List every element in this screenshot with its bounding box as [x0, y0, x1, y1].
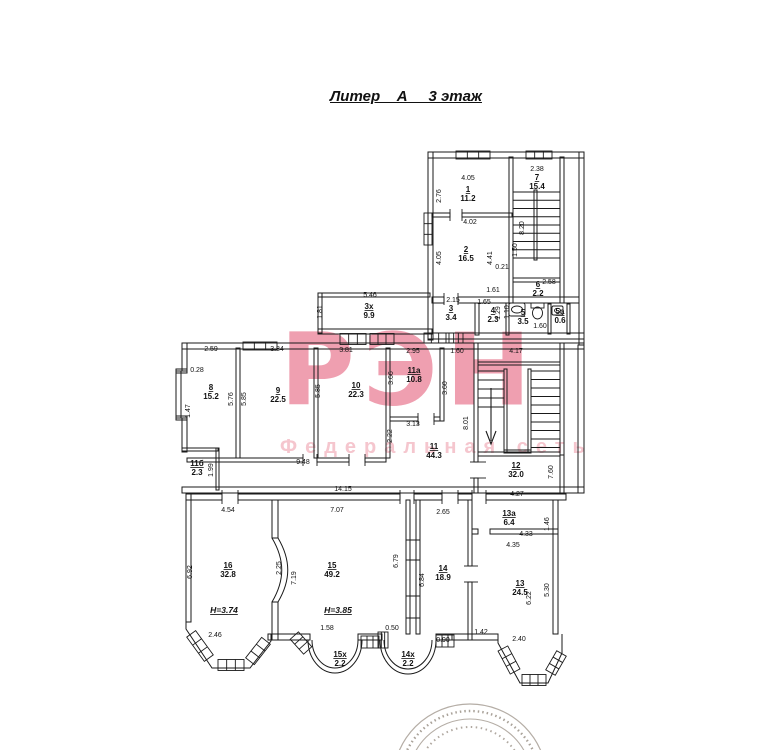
room-number: 4 [491, 306, 496, 315]
room-number: 13 [516, 579, 525, 588]
dim-label: 4.33 [519, 531, 533, 538]
wall [187, 458, 303, 462]
dim-label: 3.81 [339, 347, 353, 354]
room-area: 32.0 [508, 470, 524, 479]
ceiling-height-label: H=3.85 [324, 605, 352, 615]
dim-label: 2.38 [530, 166, 544, 173]
dim-label: 2.58 [542, 279, 556, 286]
wall [509, 157, 513, 303]
room-area: 24.5 [512, 588, 528, 597]
room-area: 15.4 [529, 182, 545, 191]
room-number: 6 [536, 280, 541, 289]
wall [406, 596, 420, 618]
wall [474, 343, 478, 462]
dim-label: 4.02 [463, 219, 477, 226]
room-area: 32.8 [220, 570, 236, 579]
dim-label: 5.46 [363, 292, 377, 299]
room-area: 10.8 [406, 375, 422, 384]
dim-label: 4.35 [506, 542, 520, 549]
window-pane [299, 642, 307, 649]
window-frame [290, 632, 312, 654]
room-number: 14 [439, 564, 448, 573]
dim-label: 2.22 [387, 429, 394, 443]
window-icon [498, 646, 520, 674]
wall [238, 494, 400, 500]
dim-label: 5.85 [241, 392, 248, 406]
window-pane [549, 663, 559, 669]
wall [182, 418, 187, 452]
dim-label: 1.46 [544, 517, 551, 531]
room-area: 6.4 [503, 518, 515, 527]
wall [416, 500, 420, 634]
dim-label: 1.58 [320, 625, 334, 632]
dim-label: 1.60 [450, 348, 464, 355]
dim-label: 4.41 [487, 251, 494, 265]
page-title: Литер А 3 этаж [330, 88, 482, 105]
wall [317, 458, 349, 462]
room-number: 1 [466, 185, 471, 194]
room-number: 9 [276, 386, 281, 395]
wall [432, 213, 450, 217]
wall [414, 494, 442, 500]
room-area: 3.4 [445, 313, 457, 322]
window-icon [246, 637, 271, 664]
wall [182, 343, 584, 349]
window-icon [522, 675, 546, 686]
room-number: 8 [209, 383, 214, 392]
wall [406, 540, 420, 560]
room-number: 7 [535, 173, 540, 182]
wall [475, 303, 479, 335]
room-area: 3.5 [517, 317, 529, 326]
room-area: 9.9 [363, 311, 375, 320]
window-frame [522, 675, 546, 686]
stair-direction-arrow [486, 388, 496, 444]
wall [186, 494, 191, 622]
room-number: 13а [502, 509, 516, 518]
ceiling-height-label: H=3.74 [210, 605, 238, 615]
dim-label: 6.79 [393, 554, 400, 568]
wall [462, 213, 512, 217]
wall [472, 529, 478, 534]
dim-label: 1.65 [477, 299, 491, 306]
dim-label: 2.95 [406, 348, 420, 355]
dim-label: 7.07 [330, 507, 344, 514]
toilet-bowl-icon [533, 307, 543, 319]
window-frame [498, 646, 520, 674]
dim-label: 1.61 [486, 287, 500, 294]
room-area: 22.3 [348, 390, 364, 399]
wall [474, 478, 478, 493]
dim-label: 7.60 [548, 465, 555, 479]
dim-label: 6.92 [187, 565, 194, 579]
dim-label: 4.17 [509, 348, 523, 355]
dim-label: 4.05 [461, 175, 475, 182]
wall [579, 152, 584, 345]
dim-label: 5.76 [228, 392, 235, 406]
room-area: 49.2 [324, 570, 340, 579]
room-number: 11а [408, 366, 421, 375]
room-area: 2.2 [402, 659, 414, 668]
room-area: 11.2 [460, 194, 476, 203]
window-icon [218, 660, 244, 671]
dim-label: 0.90 [436, 637, 450, 644]
wall [236, 348, 240, 458]
floor-plan-drawing: 4.052.762.388.204.024.054.411.500.212.58… [0, 0, 768, 750]
wall [182, 343, 187, 371]
wall [458, 494, 472, 500]
dim-label: 5.30 [544, 583, 551, 597]
wall [428, 152, 433, 340]
wall [486, 494, 566, 500]
wall [560, 343, 564, 455]
window-icon [449, 333, 463, 343]
dim-label: 8.20 [519, 221, 526, 235]
room-area: 16.5 [458, 254, 474, 263]
wall [314, 348, 318, 458]
window-frame [246, 637, 271, 664]
wall [468, 582, 472, 640]
room-area: 2.2 [532, 289, 544, 298]
room-number: 3х [365, 302, 374, 311]
wall-outline [186, 618, 271, 668]
room-number: 10 [352, 381, 361, 390]
dim-label: 0.21 [495, 264, 509, 271]
room-area: 0.6 [554, 316, 566, 325]
room-area: 18.9 [435, 573, 451, 582]
room-number: 11 [430, 442, 439, 451]
dim-label: 0.50 [385, 625, 399, 632]
wall [478, 362, 560, 365]
wall [432, 297, 444, 303]
wall [268, 634, 310, 640]
dim-label: 5.85 [315, 384, 322, 398]
dim-label: 4.05 [436, 251, 443, 265]
wall [567, 304, 570, 334]
window-icon [290, 632, 312, 654]
room-number: 15х [333, 650, 347, 659]
window-pane [256, 644, 265, 651]
dim-label: 4.27 [510, 491, 524, 498]
dim-label: 8.01 [463, 416, 470, 430]
technical-passport-page: Литер А 3 этаж РЭН Федеральная сеть 4.05… [0, 0, 768, 750]
window-frame [218, 660, 244, 671]
dim-label: 14.15 [334, 486, 352, 493]
window-pane [251, 651, 260, 658]
room-area: 15.2 [203, 392, 219, 401]
window-frame [361, 636, 379, 648]
dim-label: 3.60 [442, 381, 449, 395]
window-frame [546, 651, 567, 676]
dim-label: 2.59 [204, 346, 218, 353]
window-pane [506, 661, 516, 666]
room-number: 14х [401, 650, 415, 659]
wall [434, 417, 440, 421]
dim-label: 1.47 [185, 404, 192, 418]
dim-label: 1.81 [317, 305, 324, 319]
dim-label: 1.50 [512, 243, 519, 257]
window-pane [193, 639, 202, 645]
window-frame [449, 333, 463, 343]
wall [458, 297, 579, 303]
room-area: 2.2 [334, 659, 346, 668]
room-area: 22.5 [270, 395, 286, 404]
dim-label: 3.84 [270, 346, 284, 353]
dim-label: 6.84 [419, 573, 426, 587]
dim-label: 1.10 [504, 305, 511, 319]
dim-label: 3.66 [388, 371, 395, 385]
wall [406, 500, 410, 634]
room-number: 2 [464, 245, 469, 254]
room-area: 44.3 [426, 451, 442, 460]
dim-label: 4.54 [221, 507, 235, 514]
dim-label: 0.28 [190, 367, 204, 374]
window-pane [502, 654, 512, 659]
wall [216, 448, 219, 490]
wall [553, 500, 558, 634]
dim-label: 2.65 [436, 509, 450, 516]
room-number: 3 [449, 304, 454, 313]
dim-label: 1.42 [474, 629, 488, 636]
wall [504, 369, 507, 453]
room-area: 2.3 [191, 468, 203, 477]
dim-label: 2.15 [446, 297, 460, 304]
dim-label: 1.99 [208, 463, 215, 477]
dim-label: 2.76 [436, 189, 443, 203]
room-number: 12 [512, 461, 521, 470]
wall [468, 500, 472, 566]
room-number: 15 [328, 561, 337, 570]
room-number: 5 [521, 308, 526, 317]
window-pane [295, 637, 303, 644]
wall [272, 500, 278, 538]
room-area: 2.3 [487, 315, 499, 324]
dim-label: 1.60 [533, 323, 547, 330]
dim-label: 9.48 [296, 459, 310, 466]
dim-label: 2.46 [208, 632, 222, 639]
room-number: 11б [190, 459, 203, 468]
dim-label: 2.25 [276, 561, 283, 575]
dim-label: 7.19 [291, 571, 298, 585]
round-stamp [393, 704, 547, 750]
window-icon [546, 651, 567, 676]
wall [528, 369, 531, 453]
dim-label: 3.13 [406, 421, 420, 428]
room-number: 5а [556, 307, 565, 316]
window-icon [361, 636, 379, 648]
wall [578, 345, 584, 493]
wall [176, 371, 181, 418]
dim-label: 2.40 [512, 636, 526, 643]
wall [548, 304, 551, 334]
wall [365, 458, 386, 462]
wall [560, 157, 564, 303]
room-number: 16 [224, 561, 233, 570]
